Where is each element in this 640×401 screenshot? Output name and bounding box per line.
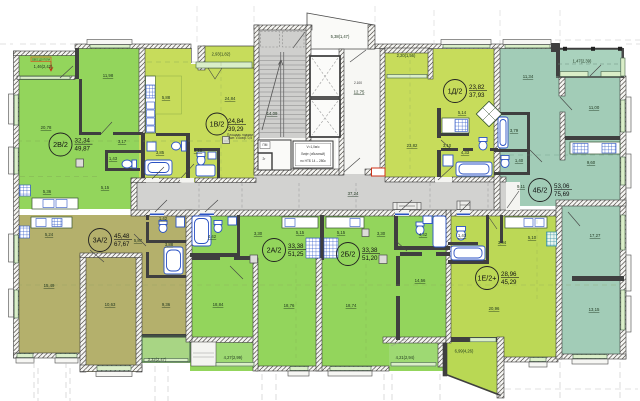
svg-text:5,15: 5,15 [337,230,346,235]
svg-text:1,40: 1,40 [515,158,524,163]
svg-text:20,96: 20,96 [489,306,500,311]
svg-text:4,42: 4,42 [208,234,217,239]
svg-text:4,33: 4,33 [461,150,470,155]
svg-text:23,82: 23,82 [407,143,418,148]
svg-text:37,93: 37,93 [469,92,485,99]
svg-text:1,46(2,42): 1,46(2,42) [34,64,53,69]
svg-text:3,04: 3,04 [498,240,507,245]
svg-text:9,60: 9,60 [587,160,596,165]
svg-text:2А/2: 2А/2 [267,246,282,255]
svg-text:1Е/2+: 1Е/2+ [478,274,497,283]
svg-text:33,38: 33,38 [288,243,304,250]
svg-text:по НТБ 14 – 280к: по НТБ 14 – 280к [300,159,326,163]
svg-text:2.100: 2.100 [354,81,362,85]
svg-text:37,24: 37,24 [348,191,359,196]
svg-text:3,17: 3,17 [118,139,127,144]
svg-text:Лифт (обычный): Лифт (обычный) [301,152,325,156]
svg-text:18,84: 18,84 [213,302,224,307]
svg-text:5,24: 5,24 [45,232,54,237]
svg-text:13,15: 13,15 [589,307,600,312]
svg-text:1,47(2,39): 1,47(2,39) [573,59,592,64]
svg-text:5,88: 5,88 [162,95,171,100]
svg-text:3,10: 3,10 [194,148,203,153]
svg-text:ПМ: ПМ [263,143,268,147]
svg-text:1,42: 1,42 [159,216,168,221]
svg-text:14,56: 14,56 [415,278,426,283]
svg-text:3,79: 3,79 [510,128,519,133]
svg-text:3А/2: 3А/2 [93,236,108,245]
svg-text:2,93(1,82): 2,93(1,82) [212,52,231,57]
svg-text:11,98: 11,98 [103,73,114,78]
svg-text:1В/2: 1В/2 [210,120,225,129]
svg-text:45,29: 45,29 [501,279,517,286]
svg-text:6,99(4,26): 6,99(4,26) [455,349,474,354]
svg-text:28,96: 28,96 [501,271,517,278]
svg-text:3,88: 3,88 [165,242,174,247]
svg-text:67,67: 67,67 [114,241,130,248]
svg-text:51,25: 51,25 [288,251,304,258]
svg-text:10,63: 10,63 [105,302,116,307]
svg-text:45,48: 45,48 [114,233,130,240]
svg-text:4,21(2,94): 4,21(2,94) [396,355,415,360]
svg-text:4,27(2,99): 4,27(2,99) [224,355,243,360]
svg-text:24,84: 24,84 [225,96,236,101]
svg-text:39,29: 39,29 [228,126,244,133]
svg-text:49,87: 49,87 [75,146,91,153]
svg-text:2Б/2: 2Б/2 [341,250,356,259]
svg-text:2В/2: 2В/2 [53,140,68,149]
svg-text:32,34: 32,34 [75,138,91,145]
svg-text:1,43: 1,43 [109,156,118,161]
svg-text:20,78: 20,78 [41,125,52,130]
svg-text:учит. с коэф. 0,5: учит. с коэф. 0,5 [228,136,252,140]
svg-text:12,75: 12,75 [354,90,365,95]
svg-text:3,30: 3,30 [377,231,386,236]
svg-text:18,76: 18,76 [284,303,295,308]
svg-text:5,15: 5,15 [101,185,110,190]
svg-text:11,34: 11,34 [523,74,534,79]
svg-text:15,49: 15,49 [44,283,55,288]
svg-text:9,11: 9,11 [517,184,526,189]
svg-text:5,87: 5,87 [134,238,143,243]
svg-text:3,32(2,47): 3,32(2,47) [148,357,167,362]
svg-text:4Б/2: 4Б/2 [533,186,548,195]
svg-text:V=1,0м/с: V=1,0м/с [306,145,319,149]
svg-text:5,10: 5,10 [528,235,537,240]
svg-text:3,10: 3,10 [443,143,452,148]
svg-text:33,38: 33,38 [362,247,378,254]
svg-text:1Д/2: 1Д/2 [448,87,463,96]
svg-text:9,36: 9,36 [162,302,171,307]
svg-text:53,06: 53,06 [554,183,570,190]
svg-text:51,20: 51,20 [362,255,378,262]
svg-text:24,84: 24,84 [228,118,244,125]
svg-text:5,38(1,47): 5,38(1,47) [331,34,350,39]
svg-text:5,14: 5,14 [458,110,467,115]
svg-text:3,85: 3,85 [156,150,165,155]
svg-text:23,82: 23,82 [469,84,485,91]
svg-text:17,27: 17,27 [590,233,601,238]
svg-text:5,36: 5,36 [43,189,52,194]
svg-text:75,69: 75,69 [554,191,570,198]
svg-text:СВЕС ДО ПОЛА: СВЕС ДО ПОЛА [32,59,51,62]
svg-text:5,15: 5,15 [296,230,305,235]
svg-text:18,74: 18,74 [346,303,357,308]
svg-text:14,09: 14,09 [267,111,278,116]
svg-text:3,30: 3,30 [254,231,263,236]
svg-text:2,20(1,56): 2,20(1,56) [397,53,416,58]
svg-text:11,00: 11,00 [589,105,600,110]
svg-text:4,42: 4,42 [419,232,428,237]
svg-text:1,40: 1,40 [458,233,467,238]
